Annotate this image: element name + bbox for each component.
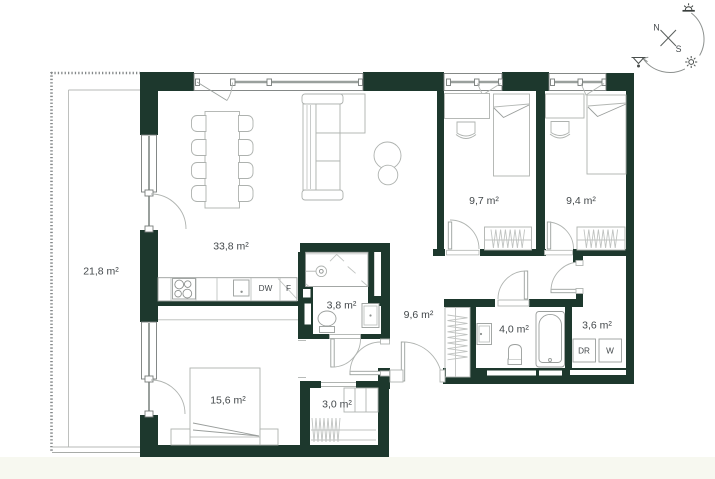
svg-text:9,4 m²: 9,4 m² (566, 195, 596, 207)
svg-text:3,8 m²: 3,8 m² (327, 300, 357, 312)
svg-text:W: W (606, 347, 614, 356)
svg-text:33,8 m²: 33,8 m² (213, 241, 249, 253)
svg-text:15,6 m²: 15,6 m² (210, 395, 246, 407)
svg-text:4,0 m²: 4,0 m² (499, 324, 529, 336)
svg-text:21,8 m²: 21,8 m² (83, 266, 119, 278)
svg-text:9,6 m²: 9,6 m² (404, 309, 434, 321)
svg-text:3,0 m²: 3,0 m² (322, 399, 352, 411)
svg-text:F: F (286, 284, 291, 293)
svg-text:DW: DW (259, 284, 273, 293)
svg-text:3,6 m²: 3,6 m² (582, 320, 612, 332)
svg-text:N: N (653, 22, 659, 32)
svg-text:DR: DR (578, 347, 590, 356)
svg-text:S: S (676, 44, 682, 54)
svg-text:9,7 m²: 9,7 m² (469, 195, 499, 207)
